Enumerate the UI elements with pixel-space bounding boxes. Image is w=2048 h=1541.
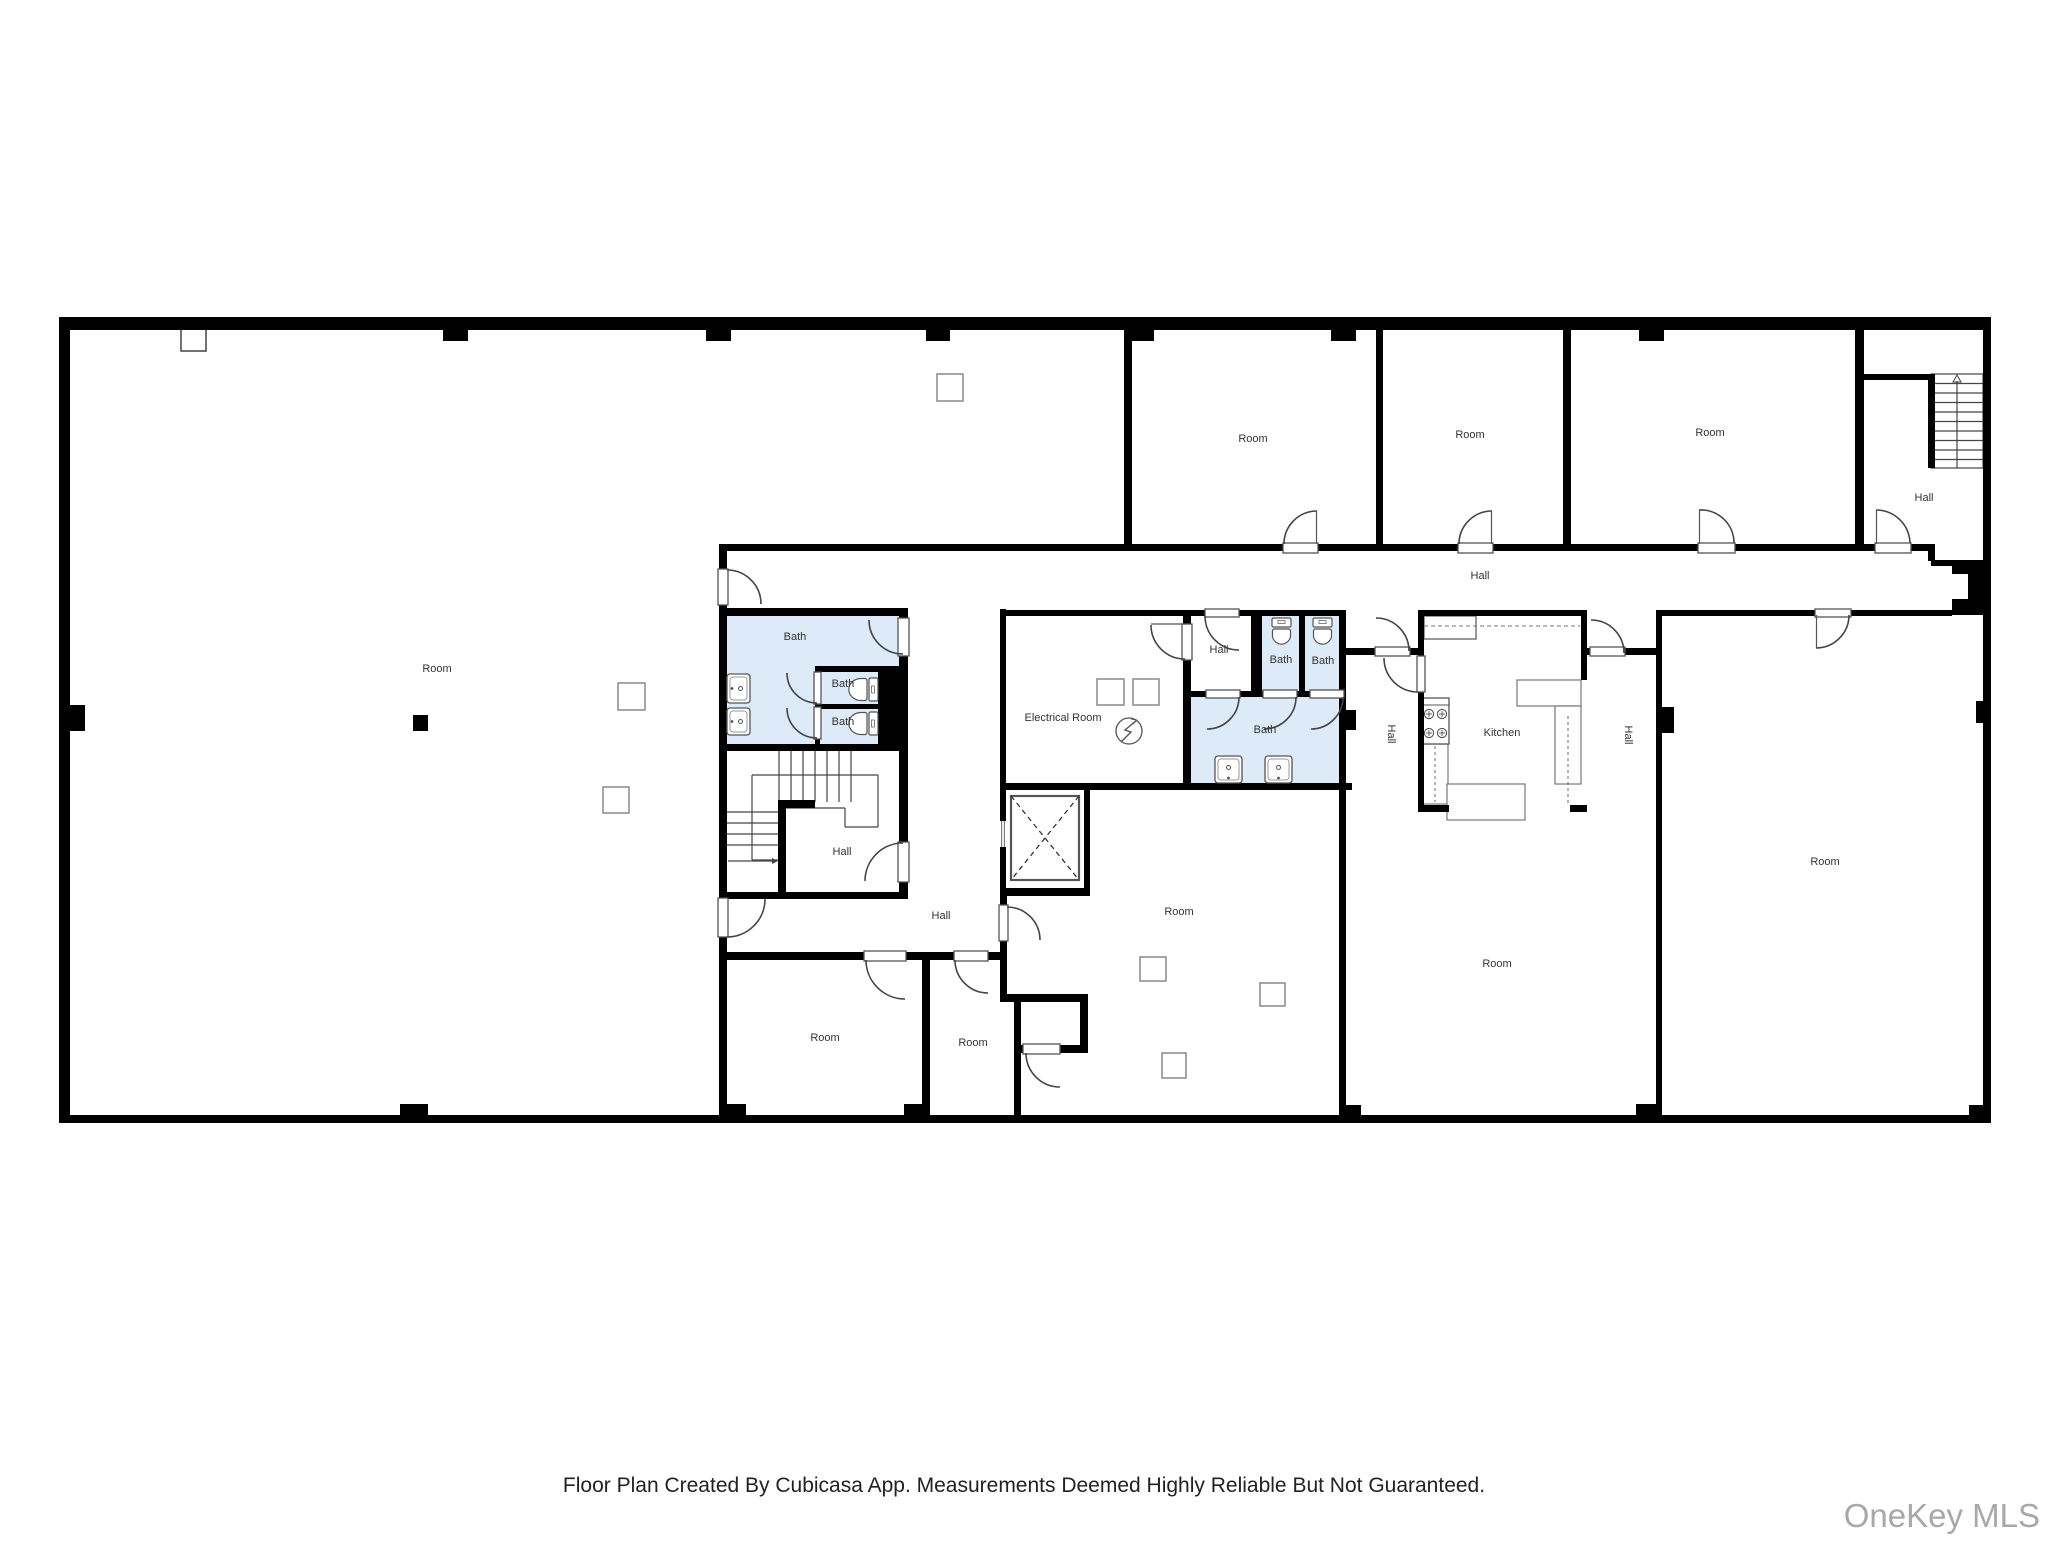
svg-text:Bath: Bath: [832, 716, 855, 728]
svg-text:Bath: Bath: [1270, 654, 1293, 666]
svg-text:Electrical Room: Electrical Room: [1024, 712, 1101, 724]
svg-text:Bath: Bath: [1312, 655, 1335, 667]
svg-text:Room: Room: [958, 1037, 987, 1049]
svg-text:Floor Plan Created By Cubicasa: Floor Plan Created By Cubicasa App. Meas…: [563, 1474, 1485, 1497]
svg-text:Bath: Bath: [832, 678, 855, 690]
svg-text:OneKey MLS: OneKey MLS: [1844, 1497, 2040, 1534]
svg-text:Room: Room: [1164, 906, 1193, 918]
svg-text:Kitchen: Kitchen: [1484, 727, 1521, 739]
svg-text:Hall: Hall: [833, 846, 852, 858]
svg-text:Room: Room: [1455, 429, 1484, 441]
svg-text:Bath: Bath: [1254, 724, 1277, 736]
svg-text:Hall: Hall: [1622, 726, 1634, 745]
svg-text:Hall: Hall: [932, 910, 951, 922]
svg-text:Room: Room: [810, 1032, 839, 1044]
svg-text:Bath: Bath: [784, 631, 807, 643]
svg-text:Room: Room: [1482, 958, 1511, 970]
svg-text:Room: Room: [422, 663, 451, 675]
svg-text:Hall: Hall: [1915, 492, 1934, 504]
svg-text:Room: Room: [1695, 427, 1724, 439]
svg-text:Hall: Hall: [1471, 570, 1490, 582]
svg-text:Room: Room: [1238, 433, 1267, 445]
svg-text:Hall: Hall: [1385, 725, 1397, 744]
svg-text:Hall: Hall: [1210, 644, 1229, 656]
svg-text:Room: Room: [1810, 856, 1839, 868]
